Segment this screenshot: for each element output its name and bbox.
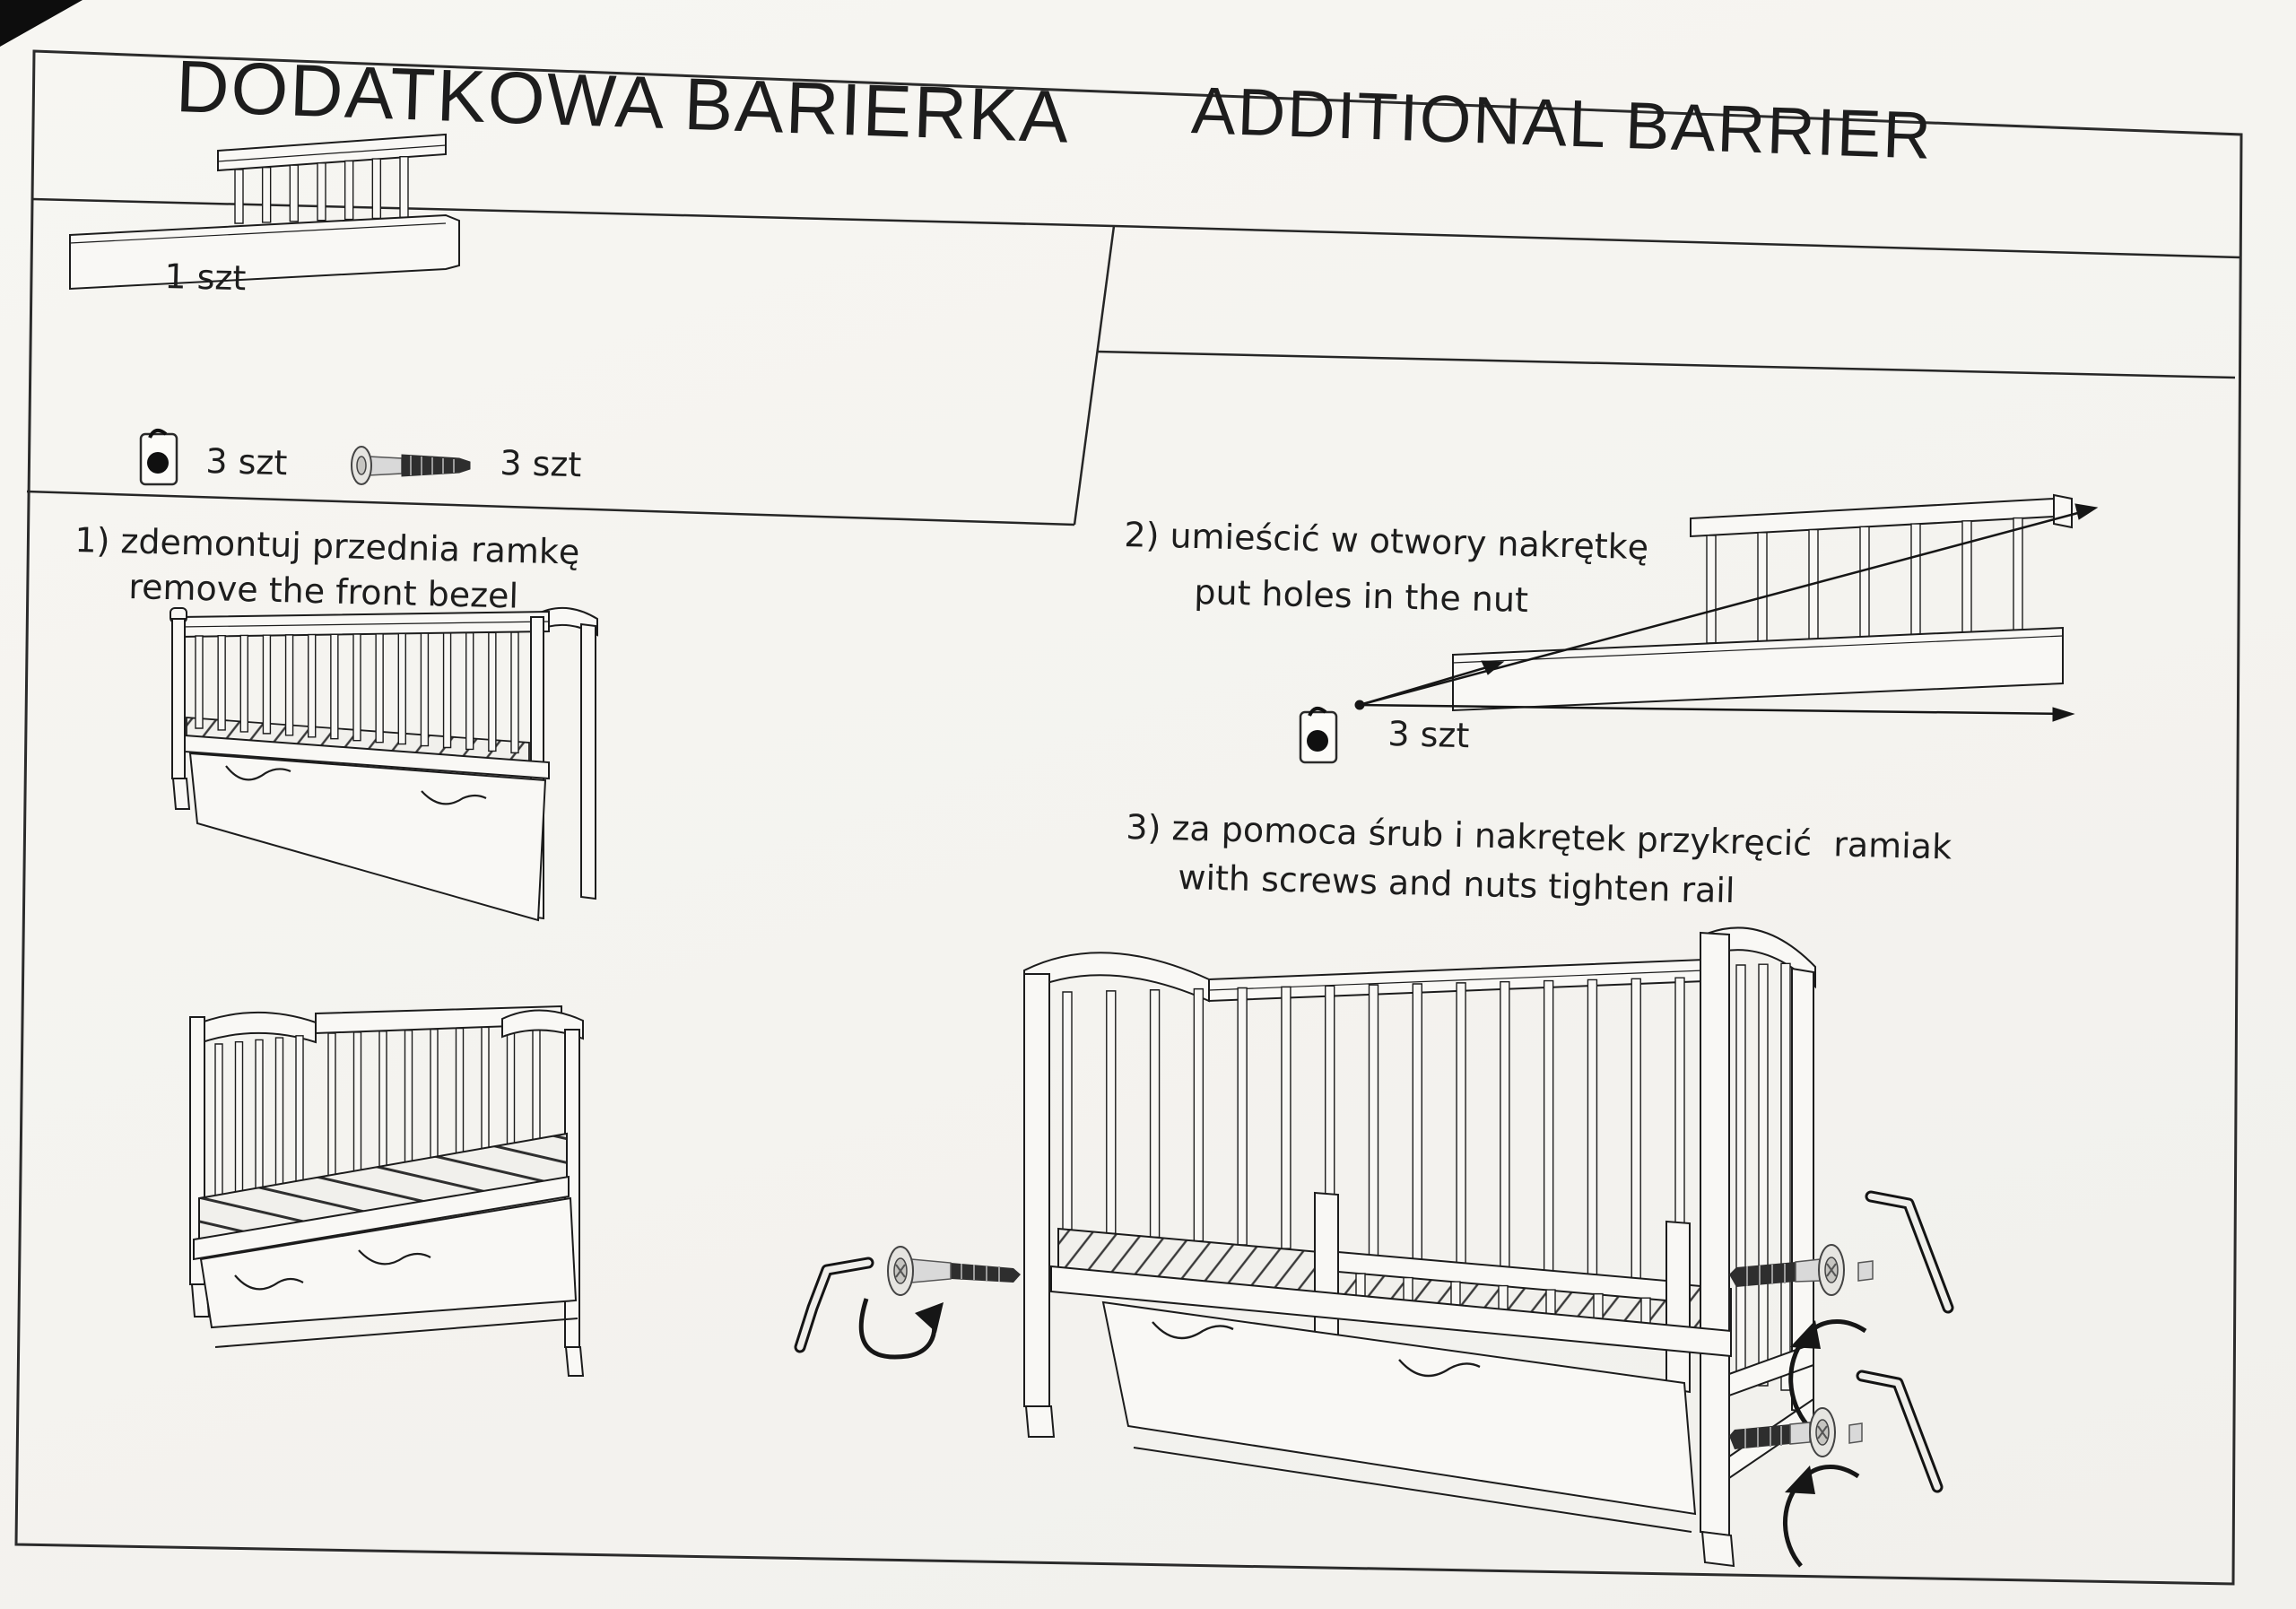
barrier-quantity-label: 1 szt [164, 257, 247, 298]
allen-key-right-upper [1871, 1196, 1948, 1308]
column-separator [1074, 226, 1114, 525]
rotation-arrow-left [861, 1299, 944, 1357]
right-box-bottom-line [1097, 352, 2235, 378]
instruction-line-art [0, 0, 2296, 1609]
crib-step1-open-drawing [190, 1006, 583, 1376]
nut-icon [1300, 709, 1336, 762]
barrier-part-drawing [70, 135, 459, 289]
parts-box-bottom-line [27, 491, 1074, 525]
scanned-instruction-sheet: DODATKOWA BARIERKA ADDITIONAL BARRIER 1 … [0, 0, 2296, 1609]
headboard-arch [1024, 952, 1209, 1001]
crib-step1-drawing [170, 608, 597, 920]
step2-text-english: put holes in the nut [1194, 572, 1529, 620]
nut-icon [141, 431, 177, 484]
step2-nut-quantity-label: 3 szt [1387, 714, 1470, 755]
nut-quantity-label: 3 szt [205, 441, 288, 483]
crib-step3-drawing [1024, 927, 1815, 1566]
screw-quantity-label: 3 szt [500, 443, 582, 484]
screw-icon [352, 447, 470, 484]
rotation-arrow-right-lower [1785, 1465, 1858, 1566]
screw-left [888, 1247, 1021, 1295]
allen-key-left [800, 1263, 868, 1347]
allen-key-right-lower [1862, 1376, 1937, 1487]
